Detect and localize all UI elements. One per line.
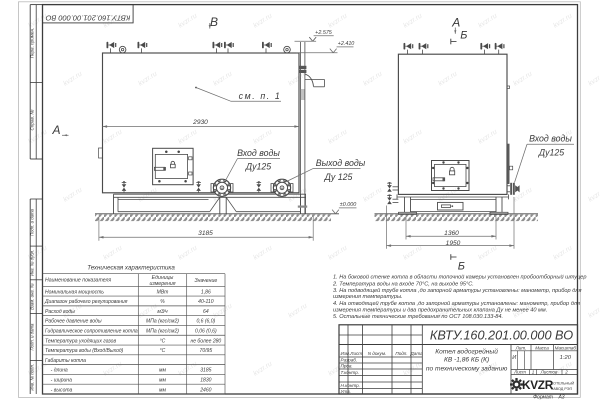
svg-text:5. Остальные технические треб: 5. Остальные технические требования по О…	[333, 314, 503, 320]
svg-text:1360: 1360	[444, 230, 459, 237]
svg-text:4. На отводящей трубе котла ,: 4. На отводящей трубе котла ,до запорной…	[333, 300, 580, 307]
svg-text:°С: °С	[160, 338, 166, 344]
svg-text:Значение: Значение	[194, 278, 217, 284]
svg-text:Подп.: Подп.	[395, 351, 407, 356]
svg-text:N докум.: N докум.	[368, 351, 387, 356]
svg-text:Лист: Лист	[513, 369, 526, 374]
svg-text:2930: 2930	[192, 119, 208, 126]
svg-text:- ширина: - ширина	[45, 377, 72, 383]
svg-text:Рабочее давление воды: Рабочее давление воды	[45, 319, 102, 325]
svg-text:измерения: измерения	[150, 281, 176, 287]
svg-text:Т.контр.: Т.контр.	[341, 370, 360, 375]
svg-text:64: 64	[203, 309, 209, 315]
svg-text:+2.575: +2.575	[315, 30, 333, 36]
svg-text:+2.410: +2.410	[338, 41, 355, 47]
svg-text:Габариты котла: Габариты котла	[45, 358, 86, 364]
svg-text:40-110: 40-110	[198, 299, 214, 305]
svg-text:°С: °С	[160, 348, 166, 354]
svg-text:Масса: Масса	[535, 345, 549, 350]
svg-text:Температура уходящих газов: Температура уходящих газов	[45, 338, 116, 344]
svg-text:Лит.: Лит.	[515, 345, 527, 350]
svg-text:Разраб.: Разраб.	[341, 358, 358, 363]
svg-text:0,6 (6,0): 0,6 (6,0)	[196, 319, 215, 325]
svg-text:МПа (кгс/см2): МПа (кгс/см2)	[146, 319, 179, 325]
svg-text:2460: 2460	[199, 387, 211, 393]
svg-text:Изм.Лист: Изм.Лист	[341, 351, 363, 356]
svg-text:Ду 125: Ду 125	[324, 172, 353, 182]
svg-text:мм: мм	[159, 377, 166, 383]
svg-text:измерения температуры и два пр: измерения температуры и два предохраните…	[333, 308, 547, 314]
svg-text:Техническая характеристика: Техническая характеристика	[87, 265, 175, 272]
svg-text:Справ. №: Справ. №	[30, 110, 35, 131]
svg-text:1: 1	[532, 369, 535, 374]
svg-text:Перв. примен.: Перв. примен.	[30, 28, 35, 59]
svg-text:мм: мм	[159, 387, 166, 393]
svg-text:Инв. № дубл.: Инв. № дубл.	[30, 250, 35, 276]
svg-text:по техническому заданию: по техническому заданию	[426, 365, 508, 373]
svg-text:Ду125: Ду125	[245, 161, 271, 171]
svg-text:0,06 (0,6): 0,06 (0,6)	[195, 329, 217, 335]
svg-text:Н.контр.: Н.контр.	[341, 383, 360, 388]
svg-text:измерения температуры.: измерения температуры.	[333, 294, 403, 300]
svg-text:1. На боковой стенке котла в: 1. На боковой стенке котла в области топ…	[333, 273, 587, 280]
svg-text:2: 2	[564, 369, 568, 374]
svg-text:Вход воды: Вход воды	[529, 133, 572, 143]
svg-text:м3/ч: м3/ч	[157, 309, 168, 315]
svg-text:МВт: МВт	[157, 289, 169, 295]
svg-text:Котел водогрейный: Котел водогрейный	[435, 348, 498, 356]
svg-text:Формат: Формат	[533, 394, 553, 400]
svg-text:3185: 3185	[198, 230, 213, 237]
svg-text:Расход воды: Расход воды	[45, 309, 75, 315]
svg-text:КОТЕЛЬНЫЙ: КОТЕЛЬНЫЙ	[551, 382, 574, 386]
svg-text:Диапазон рабочего регулировани: Диапазон рабочего регулирования	[44, 299, 128, 305]
svg-text:Пров.: Пров.	[341, 364, 353, 369]
svg-text:А3: А3	[557, 394, 564, 400]
svg-text:Выход воды: Выход воды	[316, 158, 366, 168]
svg-text:KVZR: KVZR	[522, 378, 554, 392]
svg-text:мм: мм	[159, 368, 166, 374]
svg-text:70/95: 70/95	[200, 348, 213, 354]
svg-text:Масштаб: Масштаб	[555, 345, 577, 350]
svg-text:А: А	[51, 123, 60, 137]
svg-text:- высота: - высота	[45, 387, 73, 393]
svg-text:Подп. и дата: Подп. и дата	[30, 323, 35, 351]
svg-text:1:20: 1:20	[560, 355, 572, 361]
svg-text:Подп. и дата: Подп. и дата	[30, 208, 35, 236]
svg-text:%: %	[160, 299, 165, 305]
svg-text:2. Температура воды на входе: 2. Температура воды на входе 70°С, на вы…	[332, 281, 474, 287]
svg-text:КВ -1,86 КБ (К): КВ -1,86 КБ (К)	[444, 357, 489, 364]
svg-text:Дата: Дата	[410, 351, 424, 356]
svg-text:Б: Б	[458, 261, 465, 273]
svg-text:- длина: - длина	[45, 368, 68, 374]
svg-text:А: А	[451, 16, 460, 30]
svg-text:Листов: Листов	[540, 369, 558, 374]
svg-text:±0.000: ±0.000	[340, 202, 356, 208]
svg-text:не более 280: не более 280	[190, 338, 221, 344]
svg-text:Б: Б	[460, 29, 467, 41]
svg-text:1830: 1830	[200, 377, 211, 383]
svg-text:1950: 1950	[446, 240, 461, 247]
svg-text:см. п. 1: см. п. 1	[239, 91, 282, 101]
svg-text:И: И	[512, 355, 516, 361]
svg-text:ЗАВОД РЭП: ЗАВОД РЭП	[551, 387, 572, 391]
svg-text:Взам. инв. №: Взам. инв. №	[30, 283, 35, 310]
svg-text:МПа (кгс/см2): МПа (кгс/см2)	[146, 329, 179, 335]
svg-text:Ду125: Ду125	[538, 148, 564, 158]
svg-text:Инв. № подл.: Инв. № подл.	[30, 364, 35, 391]
svg-text:Наименование показателя: Наименование показателя	[45, 277, 111, 283]
svg-text:В: В	[210, 15, 218, 29]
svg-text:3. На подводящей трубе котла: 3. На подводящей трубе котла ,до запорно…	[333, 287, 581, 294]
svg-text:3185: 3185	[200, 368, 211, 374]
svg-text:Гидравлическое сопротивление к: Гидравлическое сопротивление котла	[45, 329, 138, 335]
svg-text:КВТУ.160.201.00.000 ВО: КВТУ.160.201.00.000 ВО	[45, 14, 130, 23]
svg-text:1,86: 1,86	[201, 289, 211, 295]
svg-text:Утв.: Утв.	[341, 389, 351, 394]
svg-text:Температура воды (Вход/Выход): Температура воды (Вход/Выход)	[45, 348, 124, 354]
svg-text:Номинальная мощность: Номинальная мощность	[45, 289, 104, 295]
svg-text:КВТУ.160.201.00.000 ВО: КВТУ.160.201.00.000 ВО	[430, 329, 573, 343]
svg-text:Вход воды: Вход воды	[237, 148, 280, 158]
